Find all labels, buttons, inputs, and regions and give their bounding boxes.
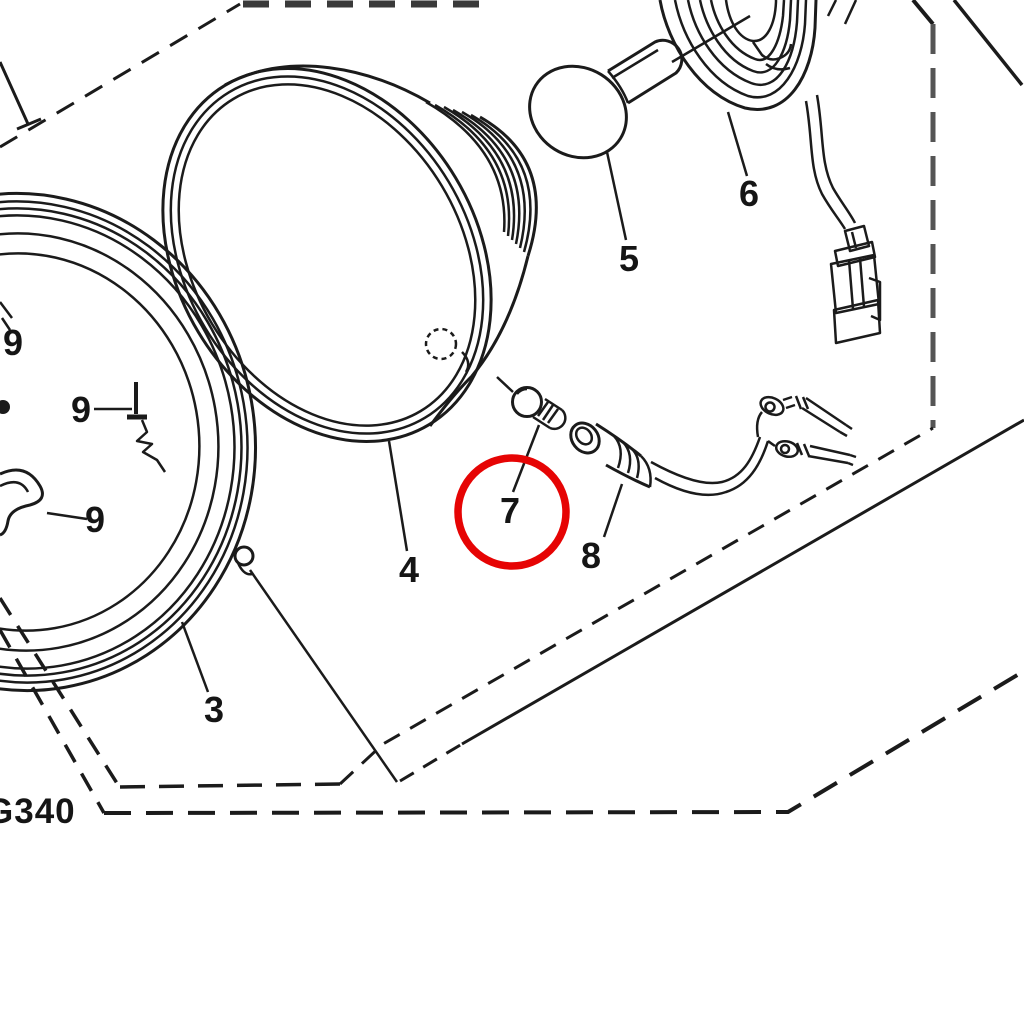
wire-connector	[831, 226, 880, 343]
socket-part6	[660, 0, 880, 343]
rim-screw	[182, 547, 397, 782]
part-label-7-4[interactable]: 7	[500, 493, 520, 529]
offcanvas-leader-line	[0, 62, 41, 129]
drawing-code: G340	[0, 792, 76, 832]
part-label-8-5[interactable]: 8	[581, 538, 601, 574]
part-label-9-8[interactable]: 9	[85, 502, 105, 538]
part-label-9-6[interactable]: 9	[3, 325, 23, 361]
part-label-9-7[interactable]: 9	[71, 392, 91, 428]
part-label-5-2[interactable]: 5	[619, 241, 639, 277]
pilot-bulb-hole	[426, 329, 456, 359]
parts-diagram-canvas: 345678999 G340	[0, 0, 1024, 1024]
part-label-3-0[interactable]: 3	[204, 692, 224, 728]
part-label-4-1[interactable]: 4	[399, 552, 419, 588]
part-label-6-3[interactable]: 6	[739, 176, 759, 212]
ring-terminals	[757, 394, 856, 465]
pilot-socket-part8	[565, 394, 856, 537]
